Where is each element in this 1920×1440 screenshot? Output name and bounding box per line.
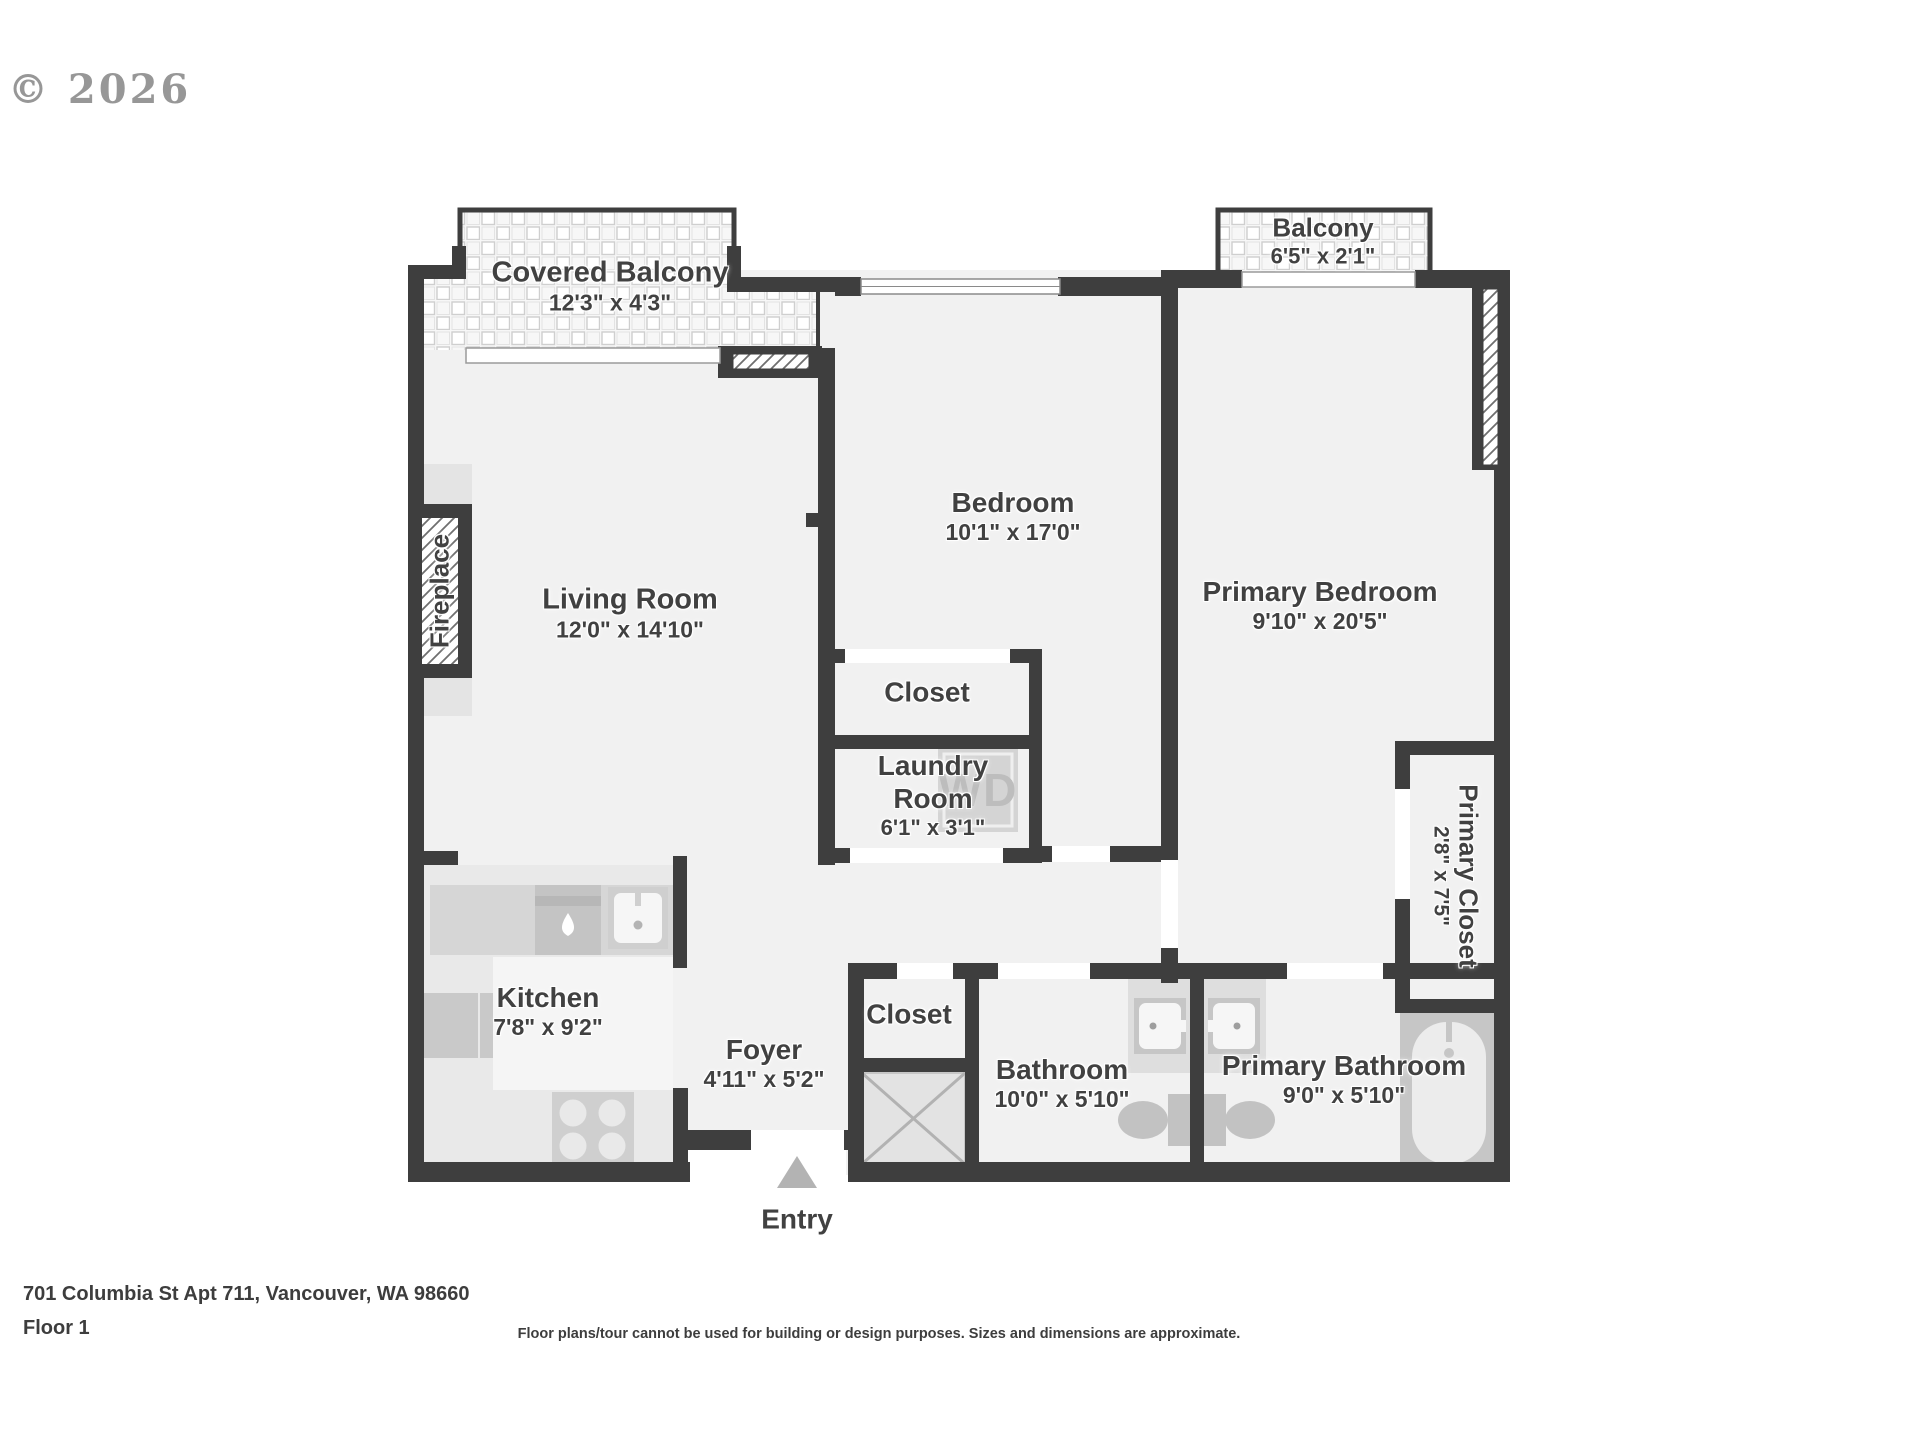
label-covered-balcony: Covered Balcony 12'3" x 4'3"	[492, 255, 729, 316]
room-labels: Covered Balcony 12'3" x 4'3" Balcony 6'5…	[0, 0, 1920, 1440]
label-closet: Closet	[884, 675, 970, 708]
label-balcony: Balcony 6'5" x 2'1"	[1271, 213, 1376, 270]
label-primary-bathroom: Primary Bathroom 9'0" x 5'10"	[1222, 1049, 1466, 1109]
label-closet-2: Closet	[866, 997, 952, 1030]
property-address: 701 Columbia St Apt 711, Vancouver, WA 9…	[23, 1283, 469, 1306]
label-entry: Entry	[761, 1202, 833, 1235]
floor-plan-page: © 2026	[0, 0, 1920, 1440]
floor-indicator: Floor 1	[23, 1317, 90, 1340]
label-bathroom: Bathroom 10'0" x 5'10"	[994, 1053, 1129, 1113]
label-living-room: Living Room 12'0" x 14'10"	[542, 582, 718, 643]
label-foyer: Foyer 4'11" x 5'2"	[703, 1033, 824, 1093]
label-kitchen: Kitchen 7'8" x 9'2"	[493, 981, 603, 1041]
label-primary-closet: Primary Closet 2'8" x 7'5"	[1428, 784, 1483, 968]
label-laundry-room: Laundry Room 6'1" x 3'1"	[838, 749, 1028, 841]
label-bedroom: Bedroom 10'1" x 17'0"	[945, 486, 1080, 546]
disclaimer-text: Floor plans/tour cannot be used for buil…	[518, 1326, 1241, 1342]
label-primary-bedroom: Primary Bedroom 9'10" x 20'5"	[1203, 575, 1438, 635]
copyright-watermark: © 2026	[8, 66, 191, 113]
label-fireplace: Fireplace	[425, 534, 456, 648]
